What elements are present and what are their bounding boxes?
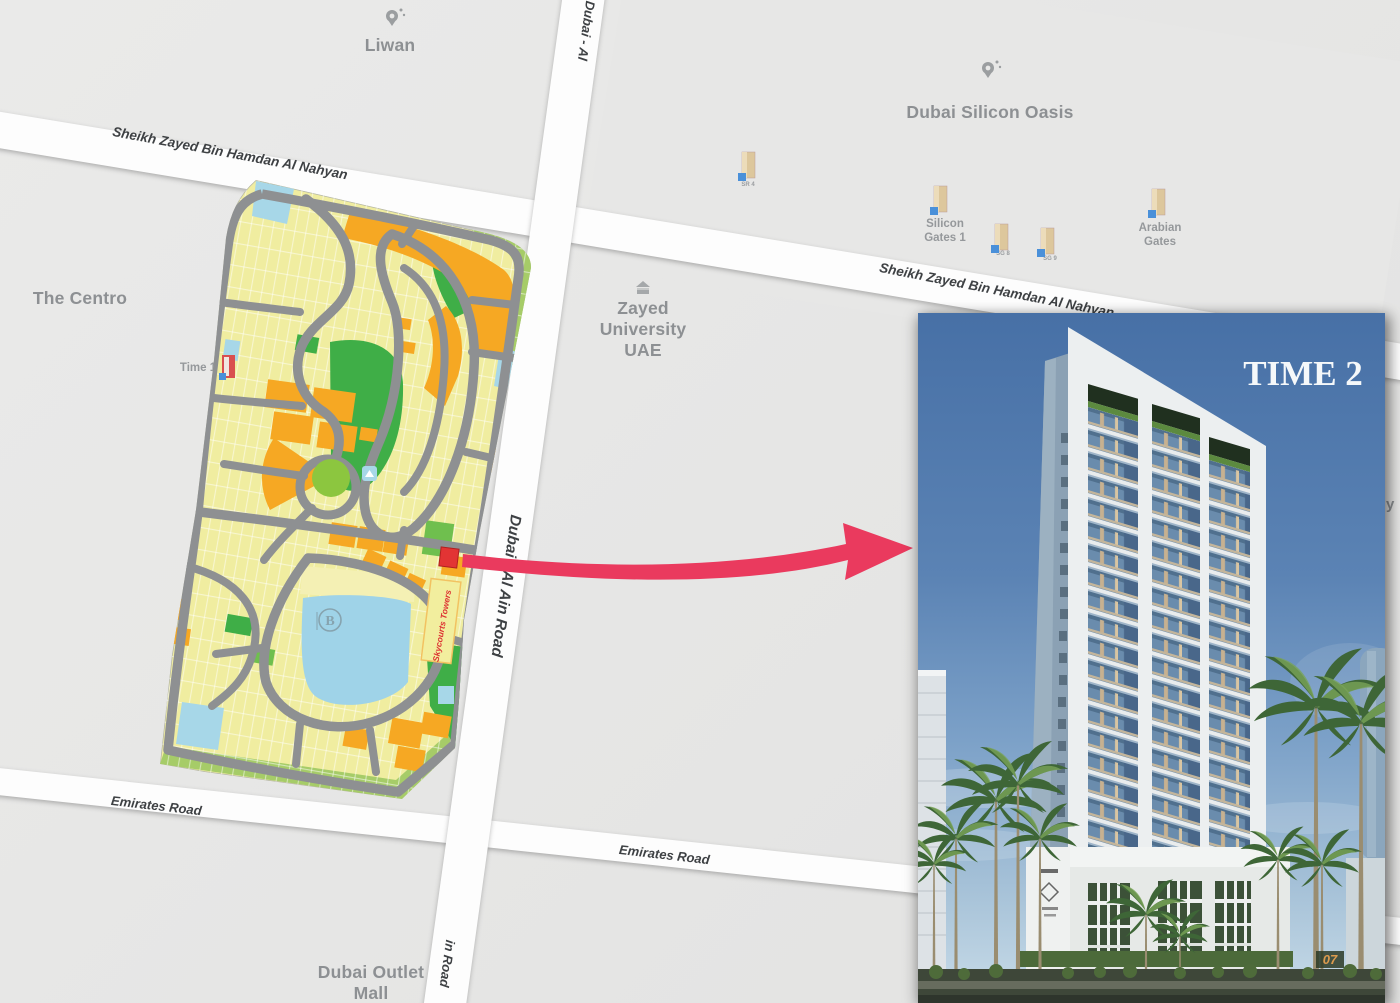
svg-text:B: B (325, 614, 334, 629)
svg-text:TIME 2: TIME 2 (1243, 354, 1363, 393)
svg-text:07: 07 (1323, 952, 1338, 967)
